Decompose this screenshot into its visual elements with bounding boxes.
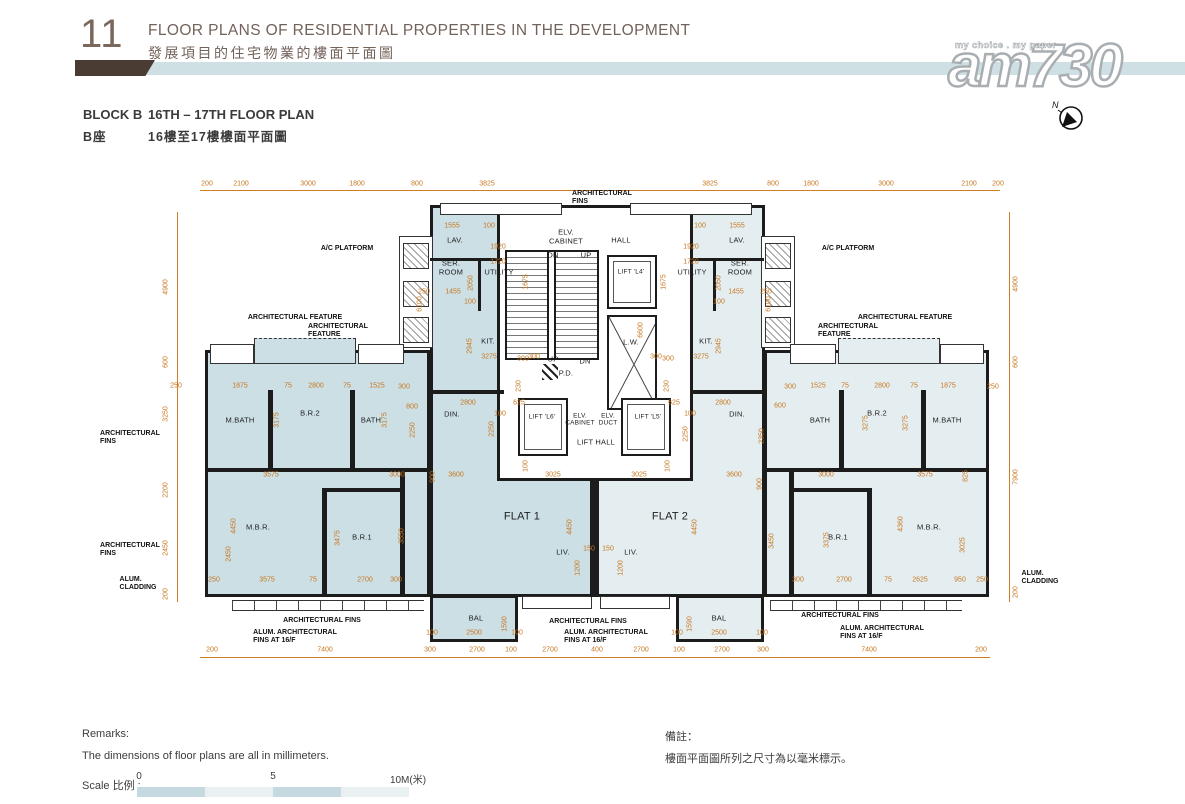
room-label: LAV. [729,237,745,246]
dimension-label: 3175 [382,412,389,428]
scale-tick-0: 0 [136,771,142,782]
room-label: FLAT 2 [652,511,688,524]
dimension-label: 75 [884,577,892,584]
svg-text:N: N [1052,100,1059,110]
dimension-label: 2700 [714,647,730,654]
room-label: M.B.R. [246,524,270,533]
dimension-label: 2450 [163,540,170,556]
dimension-label: 2800 [715,400,731,407]
annotation-label: ARCHITECTURAL FEATURE [308,323,368,339]
dimension-label: 300 [792,577,804,584]
fins-strip-right [770,600,962,611]
dimension-label: 1875 [232,383,248,390]
dimension-label: 250 [170,383,182,390]
room-label: LIFT 'L5' [635,413,662,420]
scale-bar-segment [137,787,205,797]
dimension-label: 2350 [759,428,766,444]
dimension-label: 2700 [357,577,373,584]
dimension-label: 625 [668,400,680,407]
dimension-label: 150 [583,546,595,553]
dimension-label: 2800 [460,400,476,407]
dimension-label: 1525 [369,383,385,390]
room-label: KIT. [481,338,495,347]
remarks-title-en: Remarks: [82,728,129,740]
room-label: DN [579,358,590,367]
dimension-label: 200 [975,647,987,654]
room-label: SER. ROOM [728,259,752,276]
dimension-label: 1920 [490,244,506,251]
room-label: BAL [469,615,484,624]
dimension-label: 800 [411,181,423,188]
room-label: SER. ROOM [439,259,463,276]
room-label: FLAT 1 [504,511,540,524]
dim-line-right [1009,212,1010,602]
dimension-label: 6600 [638,322,645,338]
scale-bar-segment [341,787,409,797]
dimension-label: 300 [784,384,796,391]
architectural-fins-top [440,203,562,215]
dimension-label: 100 [756,630,768,637]
architectural-feature-box [790,344,836,364]
wall-segment [690,390,766,394]
dimension-label: 100 [511,630,523,637]
dimension-label: 3275 [693,354,709,361]
lift-l6-shaft [518,398,568,456]
dimension-label: 230 [664,380,671,392]
dimension-label: 2200 [163,482,170,498]
dimension-label: 100 [483,223,495,230]
dimension-label: 100 [505,647,517,654]
page: 11 FLOOR PLANS OF RESIDENTIAL PROPERTIES… [0,0,1185,804]
dimension-label: 300 [650,354,662,361]
room-label: BATH [361,417,381,426]
scale-bar-segment [273,787,341,797]
room-label: UP [581,252,592,261]
dimension-label: 3000 [389,472,405,479]
dimension-label: 3025 [631,472,647,479]
dimension-label: 3000 [878,181,894,188]
dimension-label: 75 [910,383,918,390]
dimension-label: 825 [963,470,970,482]
annotation-label: ARCHITECTURAL FINS [100,542,160,558]
dimension-label: 2250 [489,421,496,437]
wall-segment [921,390,926,468]
room-label: LIV. [556,549,569,558]
dimension-label: 3475 [335,530,342,546]
dimension-label: 200 [201,181,213,188]
lightwell-shaft [607,315,657,410]
dimension-label: 2050 [716,275,723,291]
dimension-label: 7400 [861,647,877,654]
dimension-label: 1590 [502,616,509,632]
room-label: UTILITY [484,269,513,278]
scale-tick-10: 10M(米) [390,771,426,786]
dimension-label: 100 [673,647,685,654]
dimension-label: 4450 [567,519,574,535]
dimension-label: 100 [671,630,683,637]
room-label: ELV. DUCT [599,413,618,428]
dimension-label: 2050 [468,275,475,291]
room-label: P.D. [559,370,573,379]
dimension-label: 100 [464,299,476,306]
dimension-label: 2100 [233,181,249,188]
dimension-label: 200 [1013,586,1020,598]
header-accent-flag [75,60,155,76]
dimension-label: 900 [757,478,764,490]
dimension-label: 6100 [417,296,424,312]
annotation-label: ALUM. ARCHITECTURAL FINS AT 16/F [840,625,924,641]
room-label: BAL [712,615,727,624]
room-label: B.R.1 [352,534,372,543]
lift-l5-shaft [621,398,671,456]
dimension-label: 400 [591,647,603,654]
architectural-feature-box [358,344,404,364]
room-label: UP [548,356,559,365]
annotation-label: ALUM. ARCHITECTURAL FINS AT 16/F [253,629,337,645]
room-label: M.BATH [226,417,255,426]
dimension-label: 2700 [633,647,649,654]
scale-bar-segment [205,787,273,797]
annotation-label: ARCHITECTURAL FINS [549,618,627,626]
dimension-label: 1720 [683,259,699,266]
room-label: UTILITY [677,269,706,278]
dimension-label: 800 [406,404,418,411]
wall-segment [764,468,989,472]
dimension-label: 300 [390,577,402,584]
dimension-label: 3000 [300,181,316,188]
dimension-label: 1800 [349,181,365,188]
scale-tick-5: 5 [270,771,276,782]
dimension-label: 2945 [716,338,723,354]
dimension-label: 1455 [445,289,461,296]
dimension-label: 75 [841,383,849,390]
room-label: B.R.1 [828,534,848,543]
dimension-label: 600 [774,403,786,410]
architectural-feature-box [254,338,356,364]
room-label: M.B.R. [917,524,941,533]
room-label: DIN. [729,411,745,420]
dimension-label: 100 [713,299,725,306]
dimension-label: 2450 [226,546,233,562]
dim-line-bottom [200,657,990,658]
dimension-label: 1455 [728,289,744,296]
dimension-label: 1590 [687,616,694,632]
dimension-label: 1920 [683,244,699,251]
dimension-label: 600 [163,356,170,368]
dimension-label: 4450 [231,518,238,534]
dimension-label: 3275 [903,415,910,431]
wall-segment [322,488,327,595]
dimension-label: 300 [517,356,529,363]
dimension-label: 1200 [618,560,625,576]
dimension-label: 230 [516,380,523,392]
room-label: LIFT HALL [577,439,615,448]
annotation-label: ALUM. CLADDING [120,576,157,592]
dimension-label: 2700 [469,647,485,654]
lift-l4-shaft [607,255,657,309]
dimension-label: 200 [992,181,1004,188]
dimension-label: 3825 [702,181,718,188]
dimension-label: 3600 [726,472,742,479]
annotation-label: ARCHITECTURAL FEATURE [248,314,342,322]
annotation-label: ARCHITECTURAL FINS [801,612,879,620]
flat-divider-wall [590,480,599,597]
dimension-label: 100 [665,460,672,472]
remarks-title-zh: 備註： [665,728,698,744]
dimension-label: 800 [767,181,779,188]
dim-line-left [177,212,178,602]
wall-segment [867,488,872,595]
annotation-label: A/C PLATFORM [822,245,874,253]
dimension-label: 3575 [263,472,279,479]
dimension-label: 300 [757,647,769,654]
dimension-label: 625 [513,400,525,407]
dimension-label: 100 [494,411,506,418]
dimension-label: 3825 [479,181,495,188]
dimension-label: 4900 [163,279,170,295]
annotation-label: ARCHITECTURAL FEATURE [818,323,878,339]
dimension-label: 4450 [692,519,699,535]
dimension-label: 3175 [274,412,281,428]
room-label: HALL [611,237,631,246]
dimension-label: 100 [694,223,706,230]
dimension-label: 100 [426,630,438,637]
architectural-feature-box [940,344,984,364]
dimension-label: 2800 [308,383,324,390]
architectural-fins-bay [600,596,670,609]
dimension-label: 7400 [317,647,333,654]
dimension-label: 4360 [898,516,905,532]
dimension-label: 6100 [766,296,773,312]
room-label: LIFT 'L6' [529,413,556,420]
dimension-label: 250 [208,577,220,584]
remarks-body-zh: 樓面平面圖所列之尺寸為以毫米標示。 [665,750,852,766]
dimension-label: 600 [1013,356,1020,368]
dimension-label: 900 [430,471,437,483]
architectural-feature-box [838,338,940,364]
dimension-label: 75 [284,383,292,390]
dimension-label: 3275 [481,354,497,361]
dimension-label: 3450 [769,533,776,549]
annotation-label: ALUM. ARCHITECTURAL FINS AT 16/F [564,629,648,645]
wall-segment [268,390,273,468]
room-label: BATH [810,417,830,426]
dimension-label: 300 [662,356,674,363]
room-label: KIT. [699,338,713,347]
room-label: B.R.2 [867,410,887,419]
room-label: M.BATH [933,417,962,426]
dimension-label: 3575 [259,577,275,584]
scale-label: Scale 比例 : [82,777,141,793]
pipe-duct [542,364,558,380]
architectural-fins-bay [522,596,592,609]
dimension-label: 1720 [490,259,506,266]
room-label: L.W. [623,339,639,348]
dimension-label: 100 [684,411,696,418]
wall-segment [350,390,355,468]
dimension-label: 1875 [940,383,956,390]
dimension-label: 2625 [912,577,928,584]
dimension-label: 200 [206,647,218,654]
room-label: DIN. [444,411,460,420]
dimension-label: 300 [424,647,436,654]
fins-strip-left [232,600,424,611]
dimension-label: 100 [523,460,530,472]
architectural-fins-top [630,203,752,215]
dimension-label: 200 [163,588,170,600]
dimension-label: 3025 [960,537,967,553]
dimension-label: 7900 [1013,469,1020,485]
dimension-label: 2945 [467,338,474,354]
dimension-label: 1555 [729,223,745,230]
dimension-label: 2250 [410,422,417,438]
room-label: LAV. [447,237,463,246]
wall-segment [322,488,405,492]
dimension-label: 3550 [399,528,406,544]
dimension-label: 250 [760,289,772,296]
annotation-label: ARCHITECTURAL FINS [572,190,632,206]
dimension-label: 950 [954,577,966,584]
dimension-label: 300 [398,384,410,391]
dimension-label: 75 [309,577,317,584]
dimension-label: 2250 [683,426,690,442]
wall-segment [789,488,872,492]
ac-unit [765,243,791,269]
room-label: B.R.2 [300,410,320,419]
wall-segment [478,261,481,311]
dimension-label: 4900 [1013,276,1020,292]
am730-tagline: my choice . my paper [955,40,1057,50]
room-label: ELV. CABINET [565,413,595,428]
dimension-label: 2500 [711,630,727,637]
ac-unit [403,243,429,269]
dimension-label: 3575 [917,472,933,479]
dimension-label: 300 [528,354,540,361]
north-compass-icon: N [1046,96,1090,136]
dimension-label: 3600 [448,472,464,479]
dimension-label: 250 [976,577,988,584]
remarks-body-en: The dimensions of floor plans are all in… [82,750,329,762]
room-label: ELV. CABINET [549,228,583,245]
dimension-label: 2500 [466,630,482,637]
dimension-label: 75 [343,383,351,390]
staircase [505,250,599,360]
wall-segment [839,390,844,468]
dimension-label: 1555 [444,223,460,230]
wall-segment [428,390,504,394]
room-label: LIFT 'L4' [618,268,645,275]
dimension-label: 2800 [874,383,890,390]
dimension-label: 3250 [163,406,170,422]
dimension-label: 2700 [542,647,558,654]
dimension-label: 250 [987,384,999,391]
dimension-label: 1675 [523,274,530,290]
ac-unit [403,317,429,343]
dimension-label: 2700 [836,577,852,584]
dimension-label: 1200 [575,560,582,576]
annotation-label: A/C PLATFORM [321,245,373,253]
annotation-label: ALUM. CLADDING [1022,570,1059,586]
dimension-label: 150 [602,546,614,553]
ac-unit [765,317,791,343]
dimension-label: 3025 [545,472,561,479]
room-label: DN [547,252,558,261]
dimension-label: 1675 [661,274,668,290]
dimension-label: 2100 [961,181,977,188]
room-label: LIV. [624,549,637,558]
annotation-label: ARCHITECTURAL FINS [100,430,160,446]
dimension-label: 3000 [818,472,834,479]
dimension-label: 1525 [810,383,826,390]
annotation-label: ARCHITECTURAL FINS [283,617,361,625]
dimension-label: 250 [418,289,430,296]
annotation-label: ARCHITECTURAL FEATURE [858,314,952,322]
architectural-feature-box [210,344,254,364]
dimension-label: 1800 [803,181,819,188]
